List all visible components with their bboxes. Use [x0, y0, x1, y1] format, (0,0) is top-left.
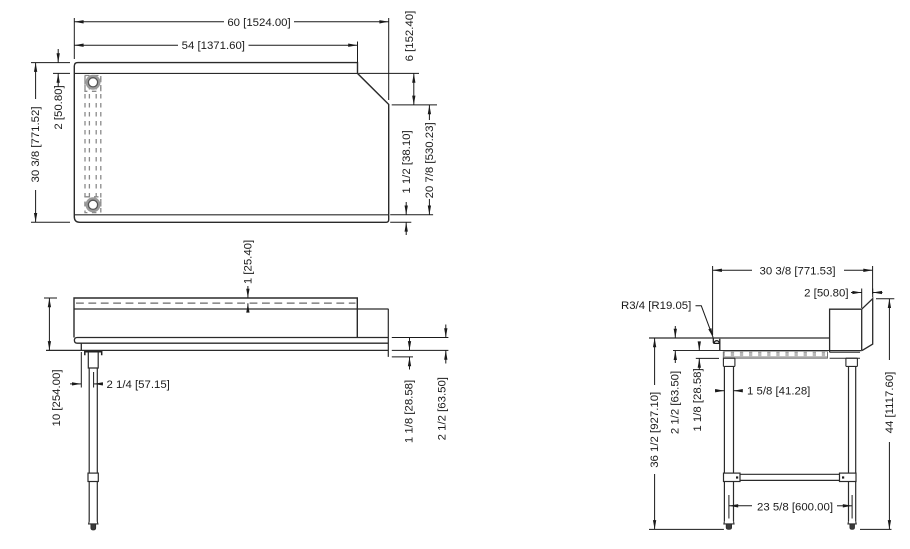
svg-text:R3/4 [R19.05]: R3/4 [R19.05] [621, 300, 691, 312]
svg-text:10 [254.00]: 10 [254.00] [51, 369, 63, 426]
svg-text:54 [1371.60]: 54 [1371.60] [182, 40, 245, 52]
svg-text:1 [25.40]: 1 [25.40] [243, 240, 255, 284]
svg-text:30 3/8 [771.52]: 30 3/8 [771.52] [30, 106, 42, 182]
svg-text:23 5/8 [600.00]: 23 5/8 [600.00] [757, 501, 833, 513]
svg-text:1 1/2 [38.10]: 1 1/2 [38.10] [401, 130, 413, 193]
svg-text:2 [50.80]: 2 [50.80] [804, 288, 848, 300]
svg-text:1 5/8 [41.28]: 1 5/8 [41.28] [747, 386, 810, 398]
svg-text:6 [152.40]: 6 [152.40] [404, 11, 416, 62]
svg-text:44 [1117.60]: 44 [1117.60] [884, 372, 896, 434]
svg-text:1 1/8 [28.58]: 1 1/8 [28.58] [692, 368, 704, 431]
svg-text:2 1/2 [63.50]: 2 1/2 [63.50] [669, 371, 681, 434]
svg-text:1 1/8 [28.58]: 1 1/8 [28.58] [404, 380, 416, 443]
svg-text:20 7/8 [530.23]: 20 7/8 [530.23] [424, 122, 436, 198]
svg-text:30 3/8 [771.53]: 30 3/8 [771.53] [759, 265, 835, 277]
svg-text:60 [1524.00]: 60 [1524.00] [227, 17, 290, 29]
svg-text:2 1/4 [57.15]: 2 1/4 [57.15] [107, 379, 170, 391]
svg-text:2 1/2 [63.50]: 2 1/2 [63.50] [437, 377, 449, 440]
svg-text:2 [50.80]: 2 [50.80] [53, 85, 65, 129]
svg-text:36 1/2 [927.10]: 36 1/2 [927.10] [649, 392, 661, 468]
